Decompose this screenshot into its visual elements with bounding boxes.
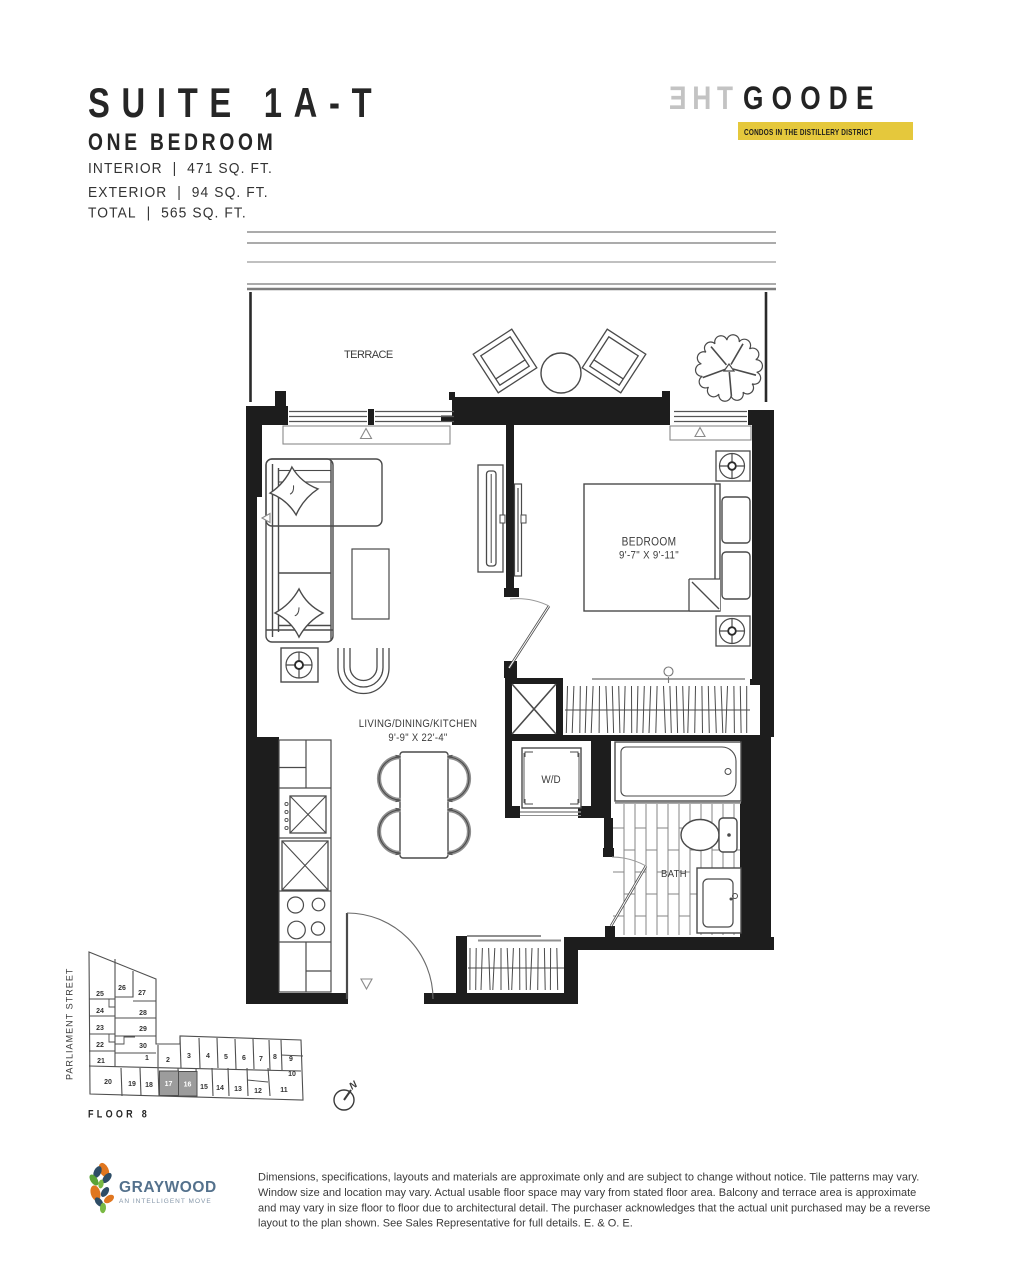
svg-text:19: 19	[128, 1081, 136, 1088]
svg-text:TOTAL | 565 SQ. FT.: TOTAL | 565 SQ. FT.	[88, 205, 247, 222]
svg-text:N: N	[347, 1079, 360, 1093]
svg-text:AN INTELLIGENT MOVE: AN INTELLIGENT MOVE	[119, 1198, 212, 1205]
svg-text:18: 18	[145, 1082, 153, 1089]
svg-text:13: 13	[234, 1086, 242, 1093]
svg-text:BATH: BATH	[661, 869, 687, 881]
svg-text:W/D: W/D	[541, 775, 561, 787]
svg-text:GOODE: GOODE	[743, 82, 882, 117]
svg-text:9'-9" X 22'-4": 9'-9" X 22'-4"	[388, 732, 447, 744]
svg-text:20: 20	[104, 1079, 112, 1086]
svg-text:CONDOS IN THE DISTILLERY DISTR: CONDOS IN THE DISTILLERY DISTRICT	[744, 127, 873, 137]
svg-text:10: 10	[288, 1071, 296, 1078]
svg-text:ONE BEDROOM: ONE BEDROOM	[88, 128, 276, 156]
svg-text:30: 30	[139, 1043, 147, 1050]
svg-text:9'-7" X 9'-11": 9'-7" X 9'-11"	[619, 550, 679, 562]
svg-text:FLOOR 8: FLOOR 8	[88, 1109, 150, 1121]
svg-text:21: 21	[97, 1058, 105, 1065]
svg-text:BEDROOM: BEDROOM	[622, 536, 677, 549]
svg-text:5: 5	[224, 1054, 228, 1061]
svg-text:1: 1	[145, 1055, 149, 1062]
svg-text:4: 4	[206, 1053, 210, 1060]
svg-text:24: 24	[96, 1008, 104, 1015]
svg-text:layout to the plan shown. See: layout to the plan shown. See Sales Repr…	[258, 1218, 633, 1230]
svg-text:15: 15	[200, 1084, 208, 1091]
svg-text:14: 14	[216, 1085, 224, 1092]
svg-text:17: 17	[165, 1081, 173, 1088]
svg-text:INTERIOR | 471 SQ. FT.: INTERIOR | 471 SQ. FT.	[88, 161, 273, 178]
svg-text:25: 25	[96, 991, 104, 998]
svg-text:and may vary in size floor to: and may vary in size floor to floor due …	[258, 1202, 930, 1214]
svg-text:9: 9	[289, 1056, 293, 1063]
svg-text:23: 23	[96, 1025, 104, 1032]
svg-text:29: 29	[139, 1026, 147, 1033]
svg-text:6: 6	[242, 1055, 246, 1062]
svg-text:EXTERIOR | 94 SQ. FT.: EXTERIOR | 94 SQ. FT.	[88, 185, 269, 202]
svg-text:11: 11	[280, 1087, 288, 1094]
svg-text:THE: THE	[663, 82, 733, 117]
svg-text:PARLIAMENT STREET: PARLIAMENT STREET	[65, 968, 75, 1080]
svg-text:27: 27	[138, 990, 146, 997]
svg-text:26: 26	[118, 985, 126, 992]
svg-text:Window size and location may v: Window size and location may vary. Actua…	[258, 1187, 916, 1199]
svg-text:LIVING/DINING/KITCHEN: LIVING/DINING/KITCHEN	[359, 717, 477, 730]
svg-text:8: 8	[273, 1054, 277, 1061]
svg-text:GRAYWOOD: GRAYWOOD	[119, 1179, 218, 1196]
svg-text:7: 7	[259, 1056, 263, 1063]
svg-text:12: 12	[254, 1088, 262, 1095]
svg-text:SUITE 1A-T: SUITE 1A-T	[88, 79, 383, 126]
svg-text:3: 3	[187, 1053, 191, 1060]
svg-text:2: 2	[166, 1057, 170, 1064]
svg-text:Dimensions, specifications, la: Dimensions, specifications, layouts and …	[258, 1172, 919, 1184]
svg-text:16: 16	[184, 1082, 192, 1089]
svg-text:TERRACE: TERRACE	[344, 349, 394, 361]
svg-text:22: 22	[96, 1042, 104, 1049]
svg-text:28: 28	[139, 1010, 147, 1017]
